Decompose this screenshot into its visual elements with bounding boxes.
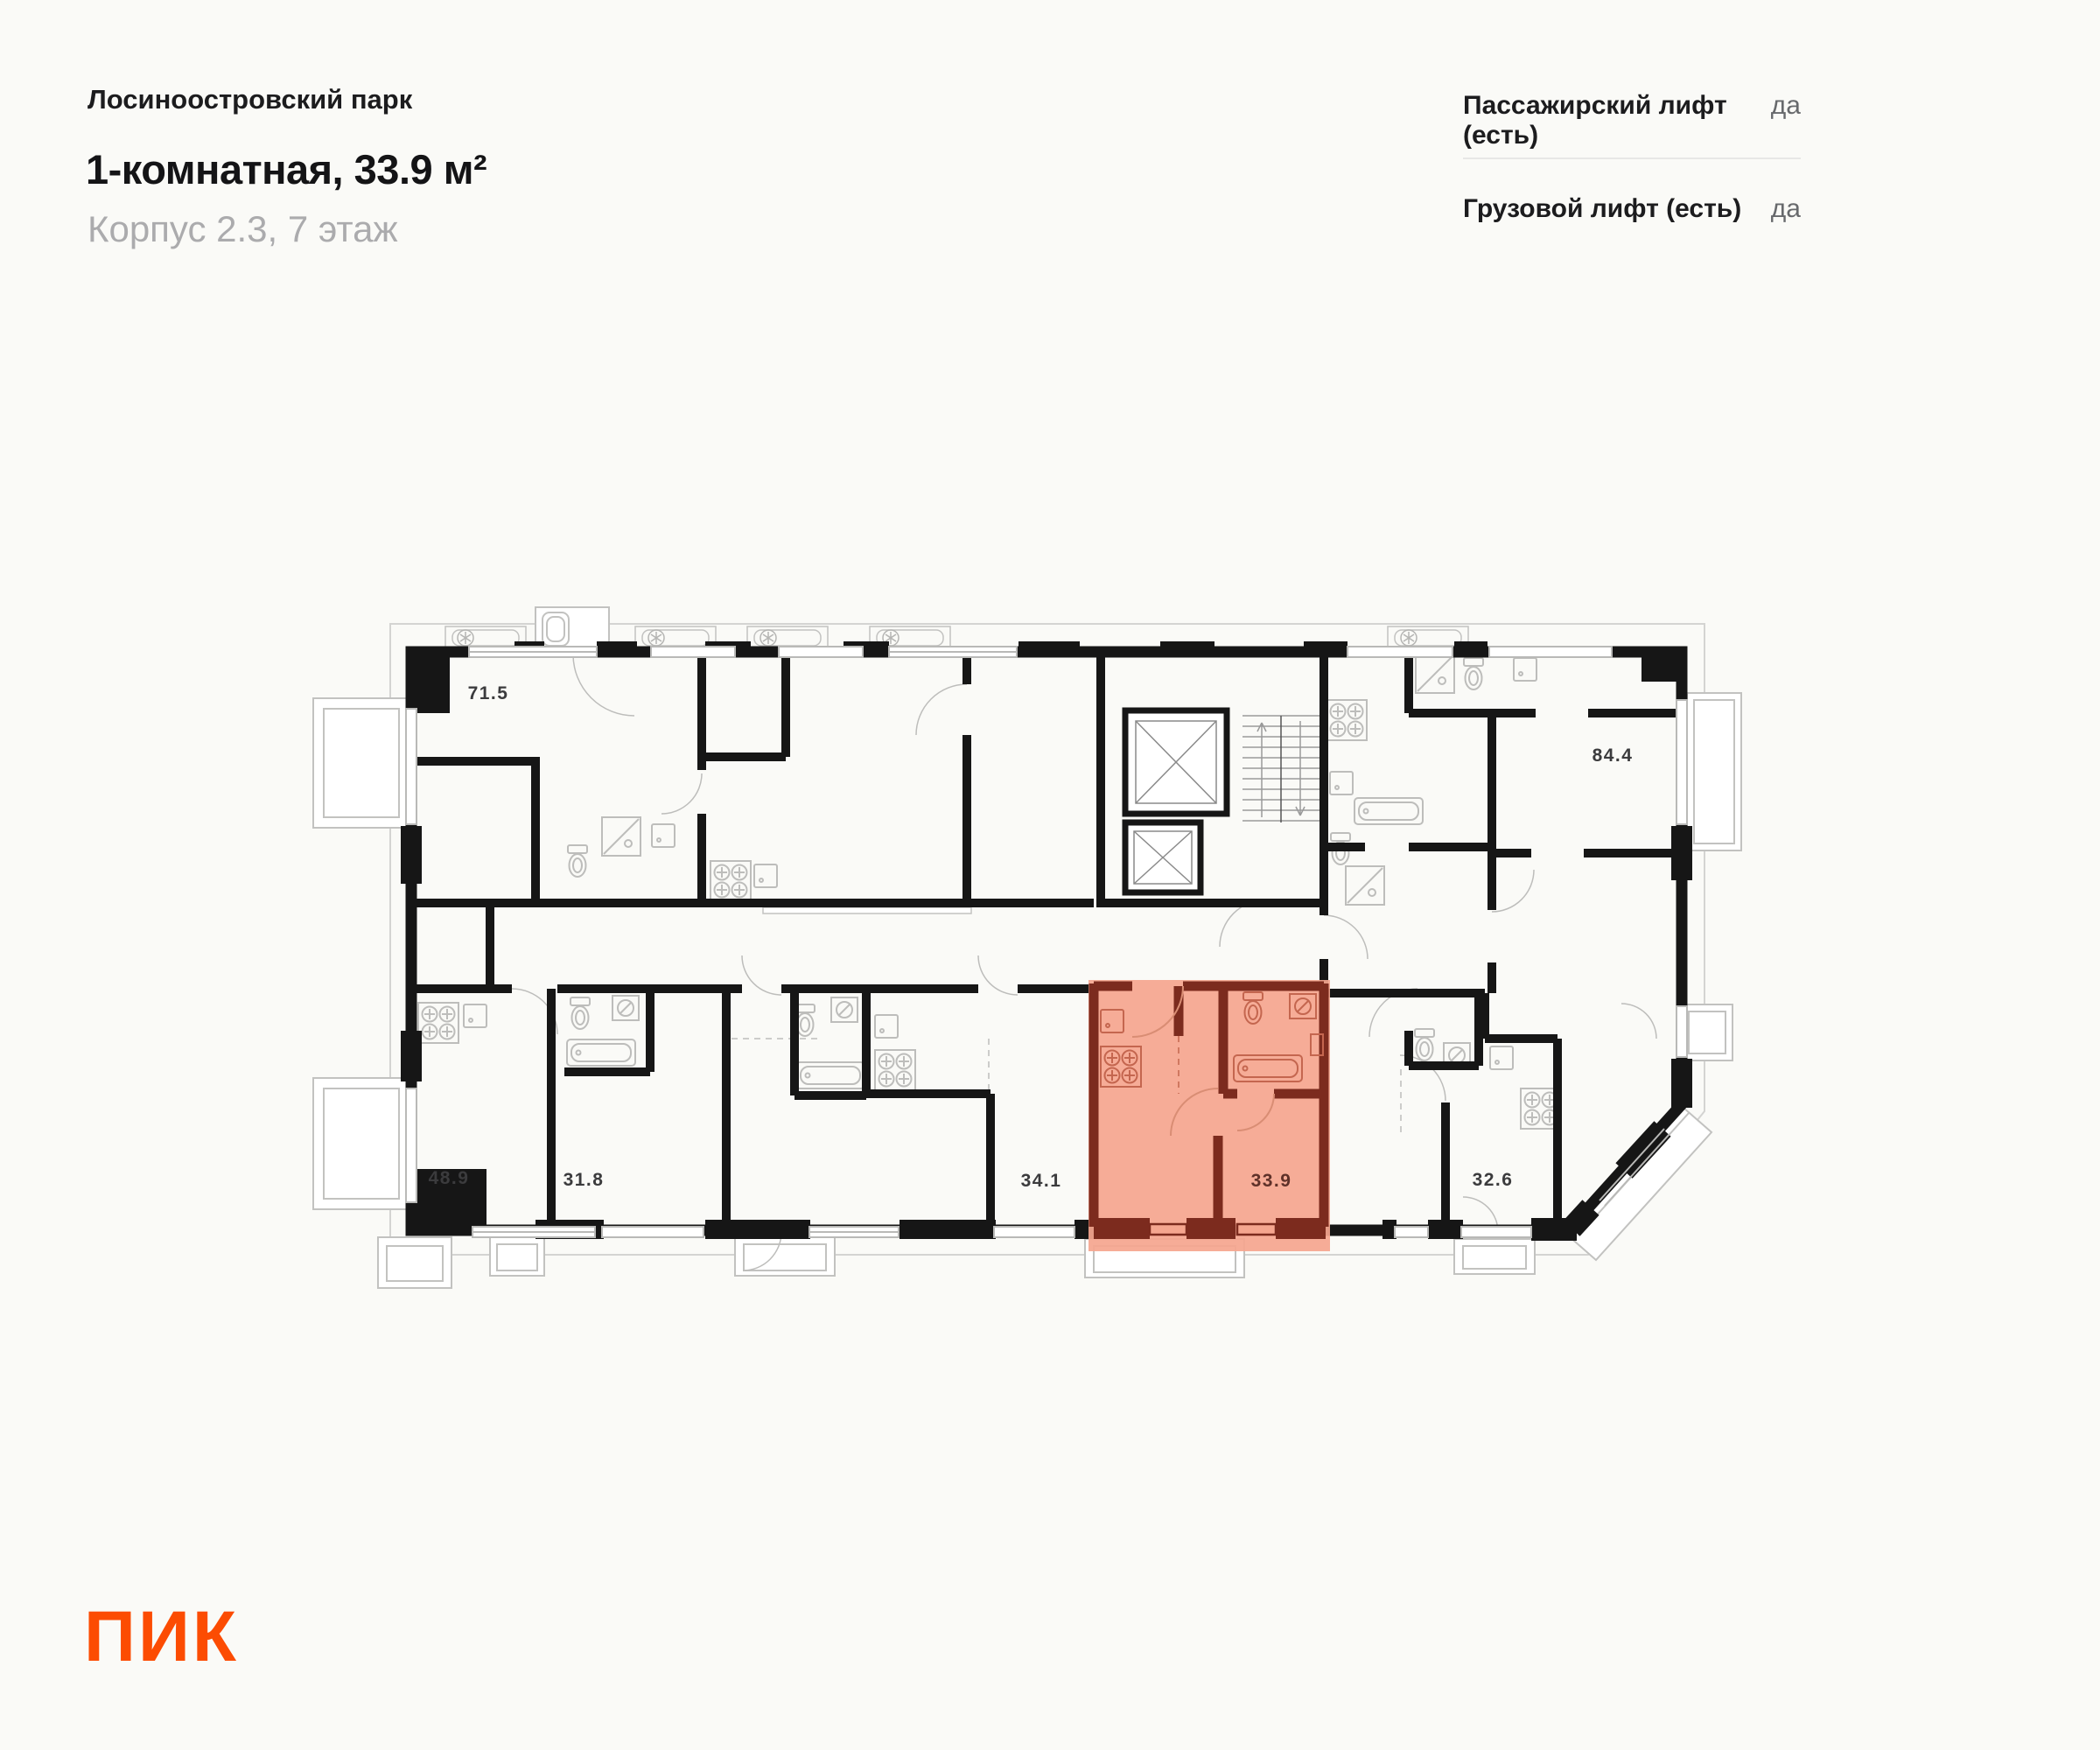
unit-area-label: 71.5 <box>468 683 509 703</box>
highlighted-unit-area-label: 33.9 <box>1251 1171 1292 1191</box>
unit-area-label: 48.9 <box>429 1168 470 1188</box>
elevator-shaft-icon <box>1125 822 1200 892</box>
elevator-shaft-icon <box>1125 710 1227 814</box>
unit-area-label: 34.1 <box>1021 1171 1062 1191</box>
page: Лосиноостровский парк 1-комнатная, 33.9 … <box>0 0 2100 1750</box>
building-offset-outline <box>390 624 1704 1255</box>
fixtures <box>418 654 1561 1129</box>
unit-area-label: 31.8 <box>563 1170 605 1190</box>
pik-logo: ПИК <box>84 1596 239 1678</box>
walls <box>401 641 1692 1241</box>
unit-area-label: 84.4 <box>1592 745 1634 766</box>
floor-plan: 33.9 71.5 48.9 31.8 34.1 32.6 84.4 <box>0 0 2100 1750</box>
unit-area-label: 32.6 <box>1473 1170 1514 1190</box>
highlighted-unit[interactable] <box>1088 980 1330 1251</box>
staircase-icon <box>1242 716 1319 822</box>
elevator-core <box>1101 652 1324 903</box>
highlighted-unit-piers <box>1094 1218 1326 1239</box>
highlighted-unit-group: 33.9 <box>1088 980 1330 1251</box>
